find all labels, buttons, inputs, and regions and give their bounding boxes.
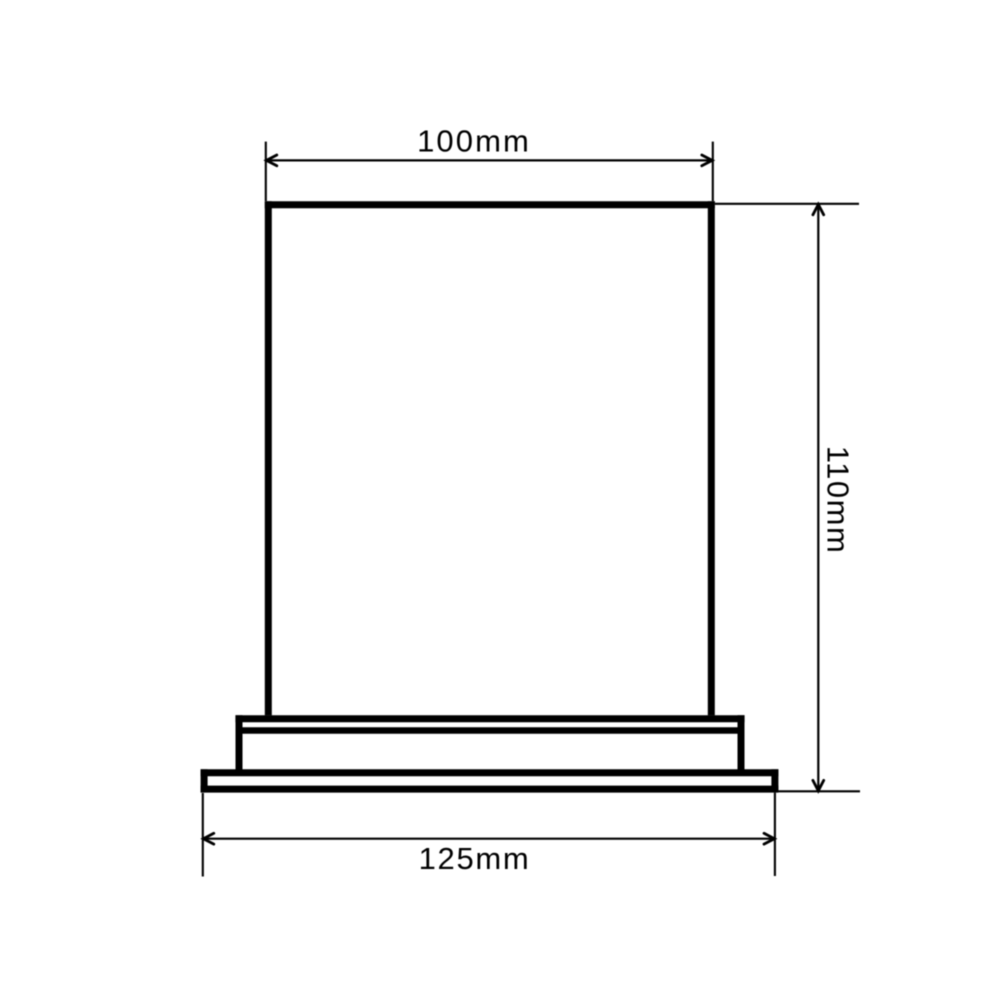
svg-text:100mm: 100mm (417, 123, 531, 158)
svg-text:110mm: 110mm (820, 446, 855, 555)
svg-text:125mm: 125mm (419, 841, 531, 876)
